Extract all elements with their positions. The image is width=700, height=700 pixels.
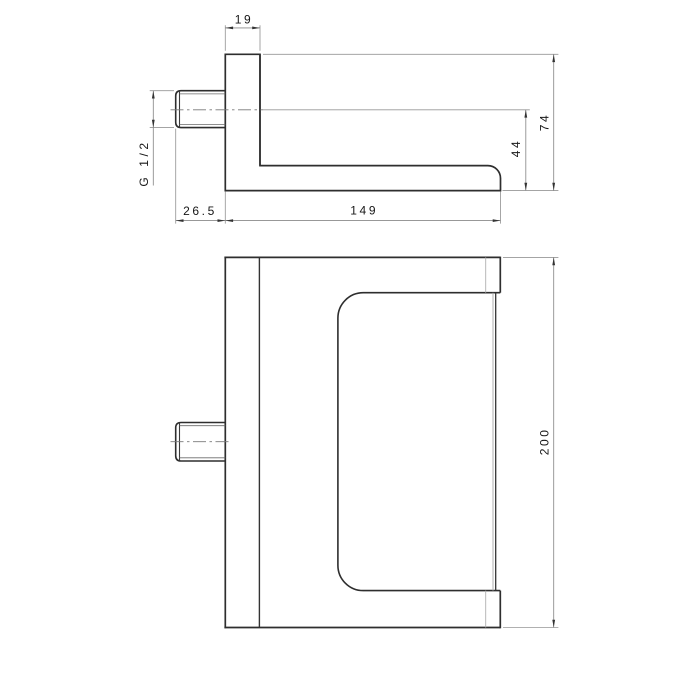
svg-text:19: 19: [235, 12, 254, 26]
svg-text:44: 44: [509, 139, 523, 158]
svg-text:G 1/2: G 1/2: [137, 139, 151, 186]
svg-text:74: 74: [538, 113, 552, 132]
svg-text:149: 149: [350, 204, 378, 218]
svg-text:26.5: 26.5: [183, 204, 217, 218]
svg-text:200: 200: [538, 427, 552, 455]
